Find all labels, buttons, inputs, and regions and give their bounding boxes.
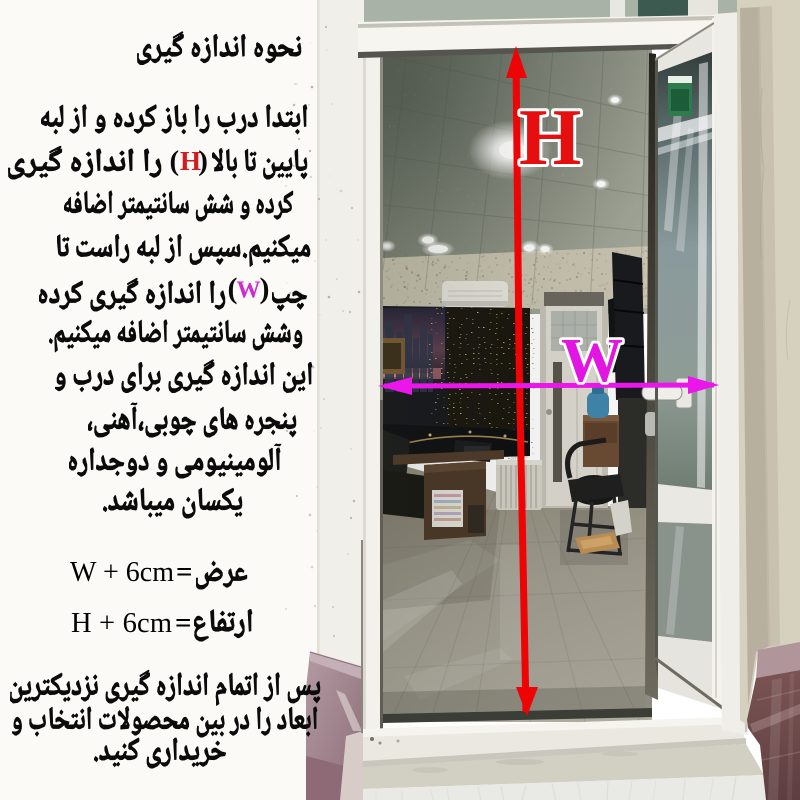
svg-text:W: W <box>561 327 623 395</box>
svg-text:(: ( <box>170 145 180 177</box>
svg-text:W + 6cm: W + 6cm <box>70 557 174 588</box>
svg-text:=: = <box>175 607 192 639</box>
svg-text:=: = <box>176 556 193 588</box>
svg-text:H + 6cm: H + 6cm <box>71 608 172 639</box>
svg-text:): ) <box>198 145 208 177</box>
svg-text:): ) <box>260 272 270 305</box>
svg-text:W: W <box>237 278 261 304</box>
svg-text:H: H <box>519 94 581 182</box>
